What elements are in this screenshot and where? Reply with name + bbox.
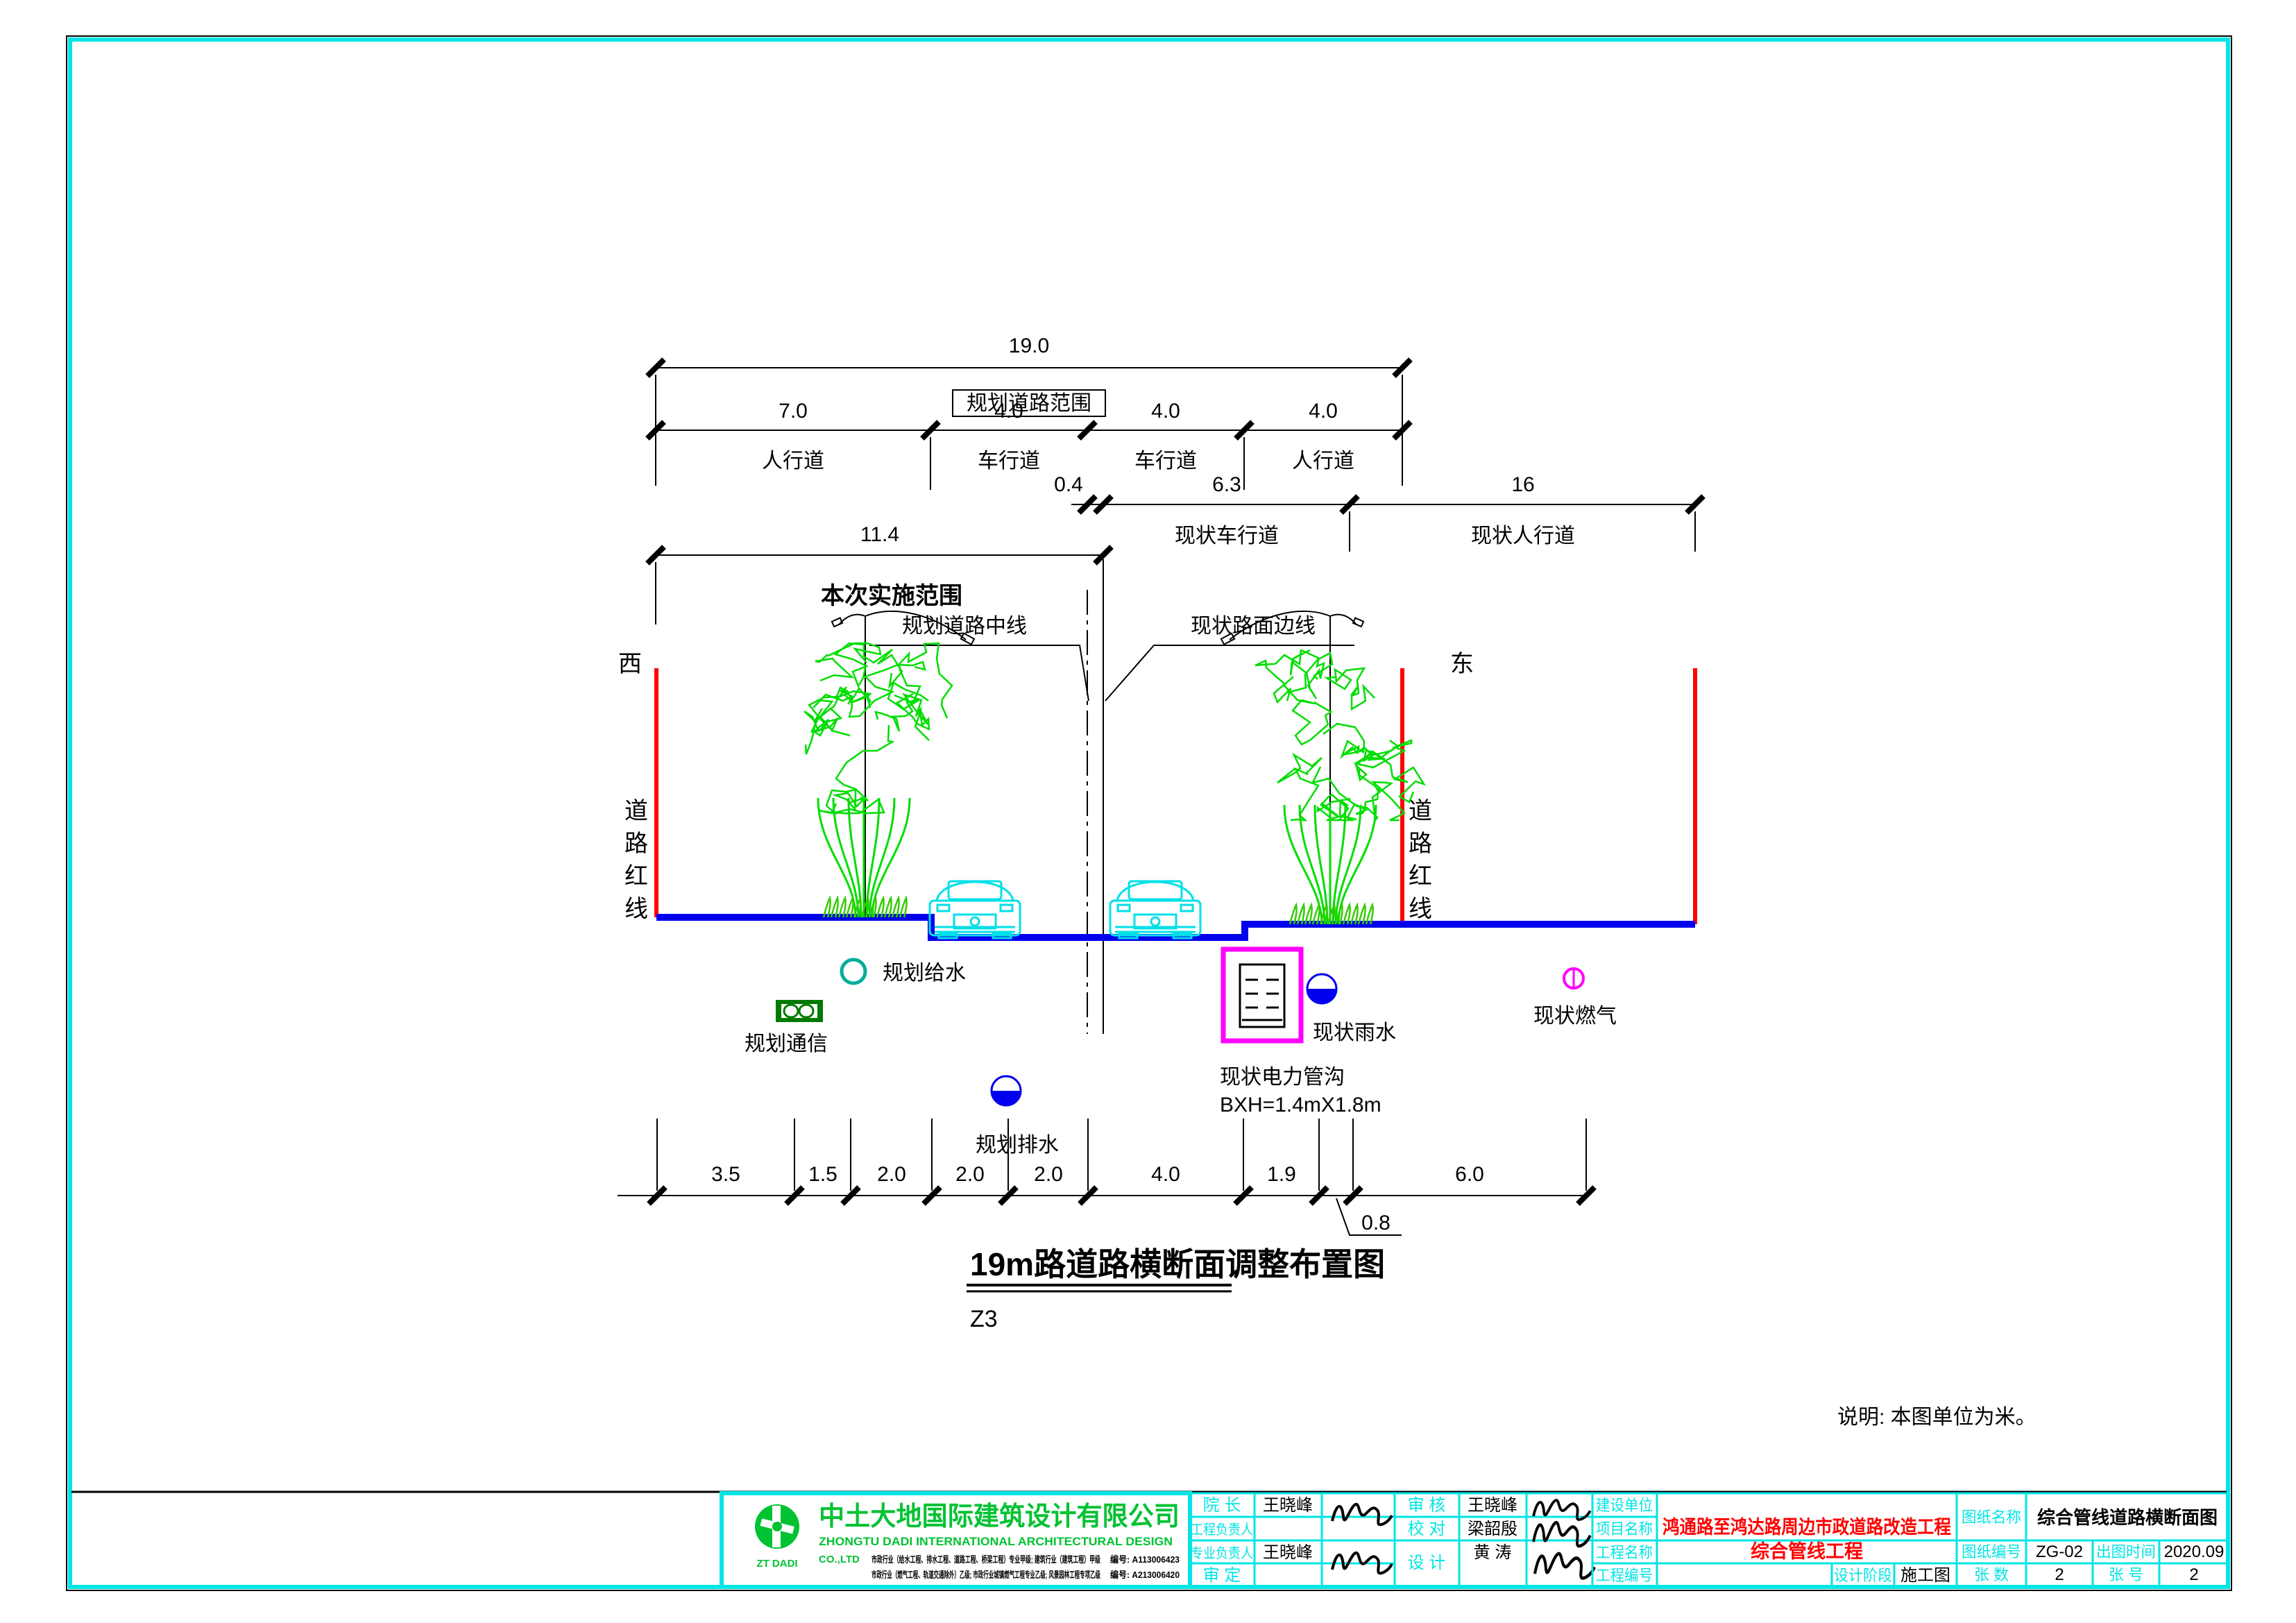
inner-frame — [70, 40, 2228, 1587]
figure-tag: Z3 — [970, 1306, 998, 1332]
date-label: 出图时间 — [2096, 1543, 2156, 1561]
label-existing-power: 现状电力管沟 — [1220, 1066, 1345, 1089]
dim-row-existing: 0.4 6.3 16 现状车行道 现状人行道 — [1054, 473, 1703, 552]
signature — [1533, 1522, 1590, 1546]
company-name-en: ZHONGTU DADI INTERNATIONAL ARCHITECTURAL… — [819, 1535, 1173, 1548]
vehicles — [930, 881, 1200, 938]
label-planned-water: 规划给水 — [883, 962, 966, 985]
project-name-value: 鸿通路至鸿达路周边市政道路改造工程 — [1663, 1516, 1951, 1538]
drawingno-label: 图纸编号 — [1962, 1543, 2021, 1561]
director-name: 王晓峰 — [1263, 1496, 1313, 1515]
tree-shape — [818, 798, 910, 917]
company-logo: ZT DADI — [755, 1504, 799, 1570]
street-lamp-west — [832, 611, 974, 917]
planned-water-icon — [842, 960, 865, 983]
dim-b35: 3.5 — [711, 1163, 740, 1186]
dim-b20c: 2.0 — [1034, 1163, 1063, 1186]
label-west: 西 — [618, 651, 642, 677]
dim-b19: 1.9 — [1267, 1163, 1296, 1186]
road-red-lines: 道路红线 道路红线 — [624, 668, 1695, 924]
works-label: 工程名称 — [1596, 1544, 1653, 1561]
tree-shape — [1255, 650, 1424, 820]
dim-4b: 4.0 — [1151, 400, 1180, 423]
dim-04: 0.4 — [1054, 473, 1083, 496]
utility-water: 规划给水 — [842, 960, 966, 985]
dim-b08: 0.8 — [1361, 1212, 1391, 1234]
dim-b20a: 2.0 — [877, 1163, 906, 1186]
company-logo-text: ZT DADI — [756, 1558, 797, 1570]
lead-name: 王晓峰 — [1263, 1543, 1313, 1562]
label-sidewalk-w: 人行道 — [762, 450, 824, 473]
company-cred2: 市政行业（燃气工程、轨道交通除外）乙级; 市政行业城镇燃气工程专业乙级; 风景园… — [871, 1570, 1101, 1580]
dim-16: 16 — [1511, 473, 1534, 496]
utility-gas: 现状燃气 — [1533, 969, 1617, 1028]
dim-row-bottom: 3.5 1.5 2.0 2.0 2.0 4.0 1.9 6.0 0.8 — [618, 1119, 1595, 1235]
outer-frame — [67, 36, 2231, 1590]
projectno-label: 工程编号 — [1596, 1567, 1653, 1584]
label-redline-west: 道路红线 — [624, 798, 648, 922]
dim-114: 11.4 — [860, 523, 899, 546]
sheets-label: 张 数 — [1974, 1566, 2009, 1583]
label-sidewalk-e: 人行道 — [1292, 450, 1354, 473]
street-trees — [804, 643, 1424, 924]
check-label: 校 对 — [1408, 1520, 1446, 1538]
signature — [1535, 1554, 1595, 1578]
car — [1110, 881, 1200, 938]
utility-rain: 现状雨水 — [1307, 974, 1396, 1044]
review-name: 王晓峰 — [1468, 1496, 1517, 1515]
date-value: 2020.09 — [2164, 1543, 2225, 1561]
figure-caption: 19m路道路横断面调整布置图 Z3 说明: 本图单位为米。 — [967, 1246, 2036, 1429]
figure-title: 19m路道路横断面调整布置图 — [970, 1246, 1385, 1282]
dim-b20b: 2.0 — [955, 1163, 985, 1186]
check-name: 梁韶殷 — [1468, 1520, 1517, 1538]
director-label: 院 长 — [1203, 1496, 1241, 1515]
label-existing-sidewalk: 现状人行道 — [1471, 525, 1575, 547]
label-planned-comm: 规划通信 — [745, 1033, 828, 1055]
dim-b40: 4.0 — [1151, 1163, 1180, 1186]
utility-comm: 规划通信 — [745, 1000, 828, 1055]
owner-label: 建设单位 — [1596, 1497, 1653, 1514]
design-name: 黄 涛 — [1474, 1543, 1512, 1562]
street-lamp-east — [1221, 611, 1363, 924]
dim-b15: 1.5 — [808, 1163, 837, 1186]
sheet-note: 说明: 本图单位为米。 — [1837, 1406, 2036, 1429]
design-label: 设 计 — [1408, 1554, 1446, 1572]
company-name-en2: CO.,LTD — [819, 1554, 860, 1565]
label-planned-drain: 规划排水 — [976, 1134, 1059, 1157]
company-cred1: 市政行业（给水工程、排水工程、道路工程、桥梁工程）专业甲级; 建筑行业（建筑工程… — [871, 1554, 1101, 1565]
stage-label: 设计阶段 — [1834, 1567, 1892, 1584]
stage-value: 施工图 — [1900, 1566, 1950, 1585]
review-label: 审 核 — [1408, 1496, 1446, 1515]
tree-shape — [1284, 805, 1376, 924]
label-redline-east: 道路红线 — [1409, 798, 1432, 922]
approve-label: 审 定 — [1203, 1566, 1241, 1585]
dim-4a: 4.0 — [994, 400, 1023, 423]
label-planned-range: 规划道路范围 — [967, 392, 1091, 415]
works-name-value: 综合管线工程 — [1751, 1540, 1863, 1562]
dim-4c: 4.0 — [1309, 400, 1338, 423]
sheetno-label: 张 号 — [2109, 1566, 2143, 1583]
label-lane-e: 车行道 — [1134, 450, 1197, 473]
utility-drain: 规划排水 — [976, 1076, 1059, 1157]
project-label: 项目名称 — [1596, 1520, 1653, 1538]
cad-sheet: 19.0 规划道路范围 7.0 4.0 4.0 4.0 人行道 车行道 车行道 … — [0, 0, 2296, 1623]
company-cred2-no: 编号: A213006420 — [1110, 1570, 1180, 1580]
drawing-table: 图纸名称 综合管线道路横断面图 图纸编号 ZG-02 出图时间 2020.09 … — [1957, 1493, 2228, 1587]
sheets-value: 2 — [2055, 1565, 2064, 1584]
car — [930, 881, 1020, 938]
label-east: 东 — [1450, 651, 1474, 677]
drawingname-value: 综合管线道路横断面图 — [2037, 1507, 2218, 1528]
lead-label: 专业负责人 — [1191, 1545, 1253, 1561]
approvals-table: 院 长 工程负责人 专业负责人 审 定 王晓峰 王晓峰 审 核 校 对 设 计 … — [1190, 1493, 1595, 1587]
reference-lines: 规划道路中线 现状路面边线 西 东 — [618, 559, 1474, 1034]
company-block: ZT DADI 中土大地国际建筑设计有限公司 ZHONGTU DADI INTE… — [722, 1493, 1190, 1587]
label-implement-range: 本次实施范围 — [821, 583, 962, 609]
company-cred1-no: 编号: A113006423 — [1110, 1554, 1180, 1565]
label-existing-edge: 现状路面边线 — [1191, 615, 1316, 638]
dim-row-implement: 11.4 本次实施范围 — [647, 523, 1112, 624]
dim-63: 6.3 — [1212, 473, 1241, 496]
label-existing-gas: 现状燃气 — [1533, 1005, 1617, 1028]
dim-19: 19.0 — [1009, 334, 1049, 357]
sheetno-value: 2 — [2189, 1565, 2198, 1584]
pm-label: 工程负责人 — [1191, 1522, 1253, 1538]
label-existing-lane: 现状车行道 — [1175, 525, 1279, 547]
drawingno-value: ZG-02 — [2036, 1543, 2083, 1561]
company-name-cn: 中土大地国际建筑设计有限公司 — [819, 1502, 1180, 1531]
label-power-size: BXH=1.4mX1.8m — [1220, 1094, 1381, 1116]
drawingname-label: 图纸名称 — [1962, 1509, 2021, 1526]
tree-shape — [804, 643, 952, 813]
dim-7: 7.0 — [779, 400, 808, 423]
label-lane-w: 车行道 — [978, 450, 1040, 473]
label-existing-rain: 现状雨水 — [1313, 1021, 1396, 1044]
dim-b60: 6.0 — [1455, 1163, 1484, 1186]
signature — [1332, 1504, 1392, 1524]
project-table: 建设单位 项目名称 工程名称 工程编号 鸿通路至鸿达路周边市政道路改造工程 综合… — [1592, 1493, 1957, 1587]
